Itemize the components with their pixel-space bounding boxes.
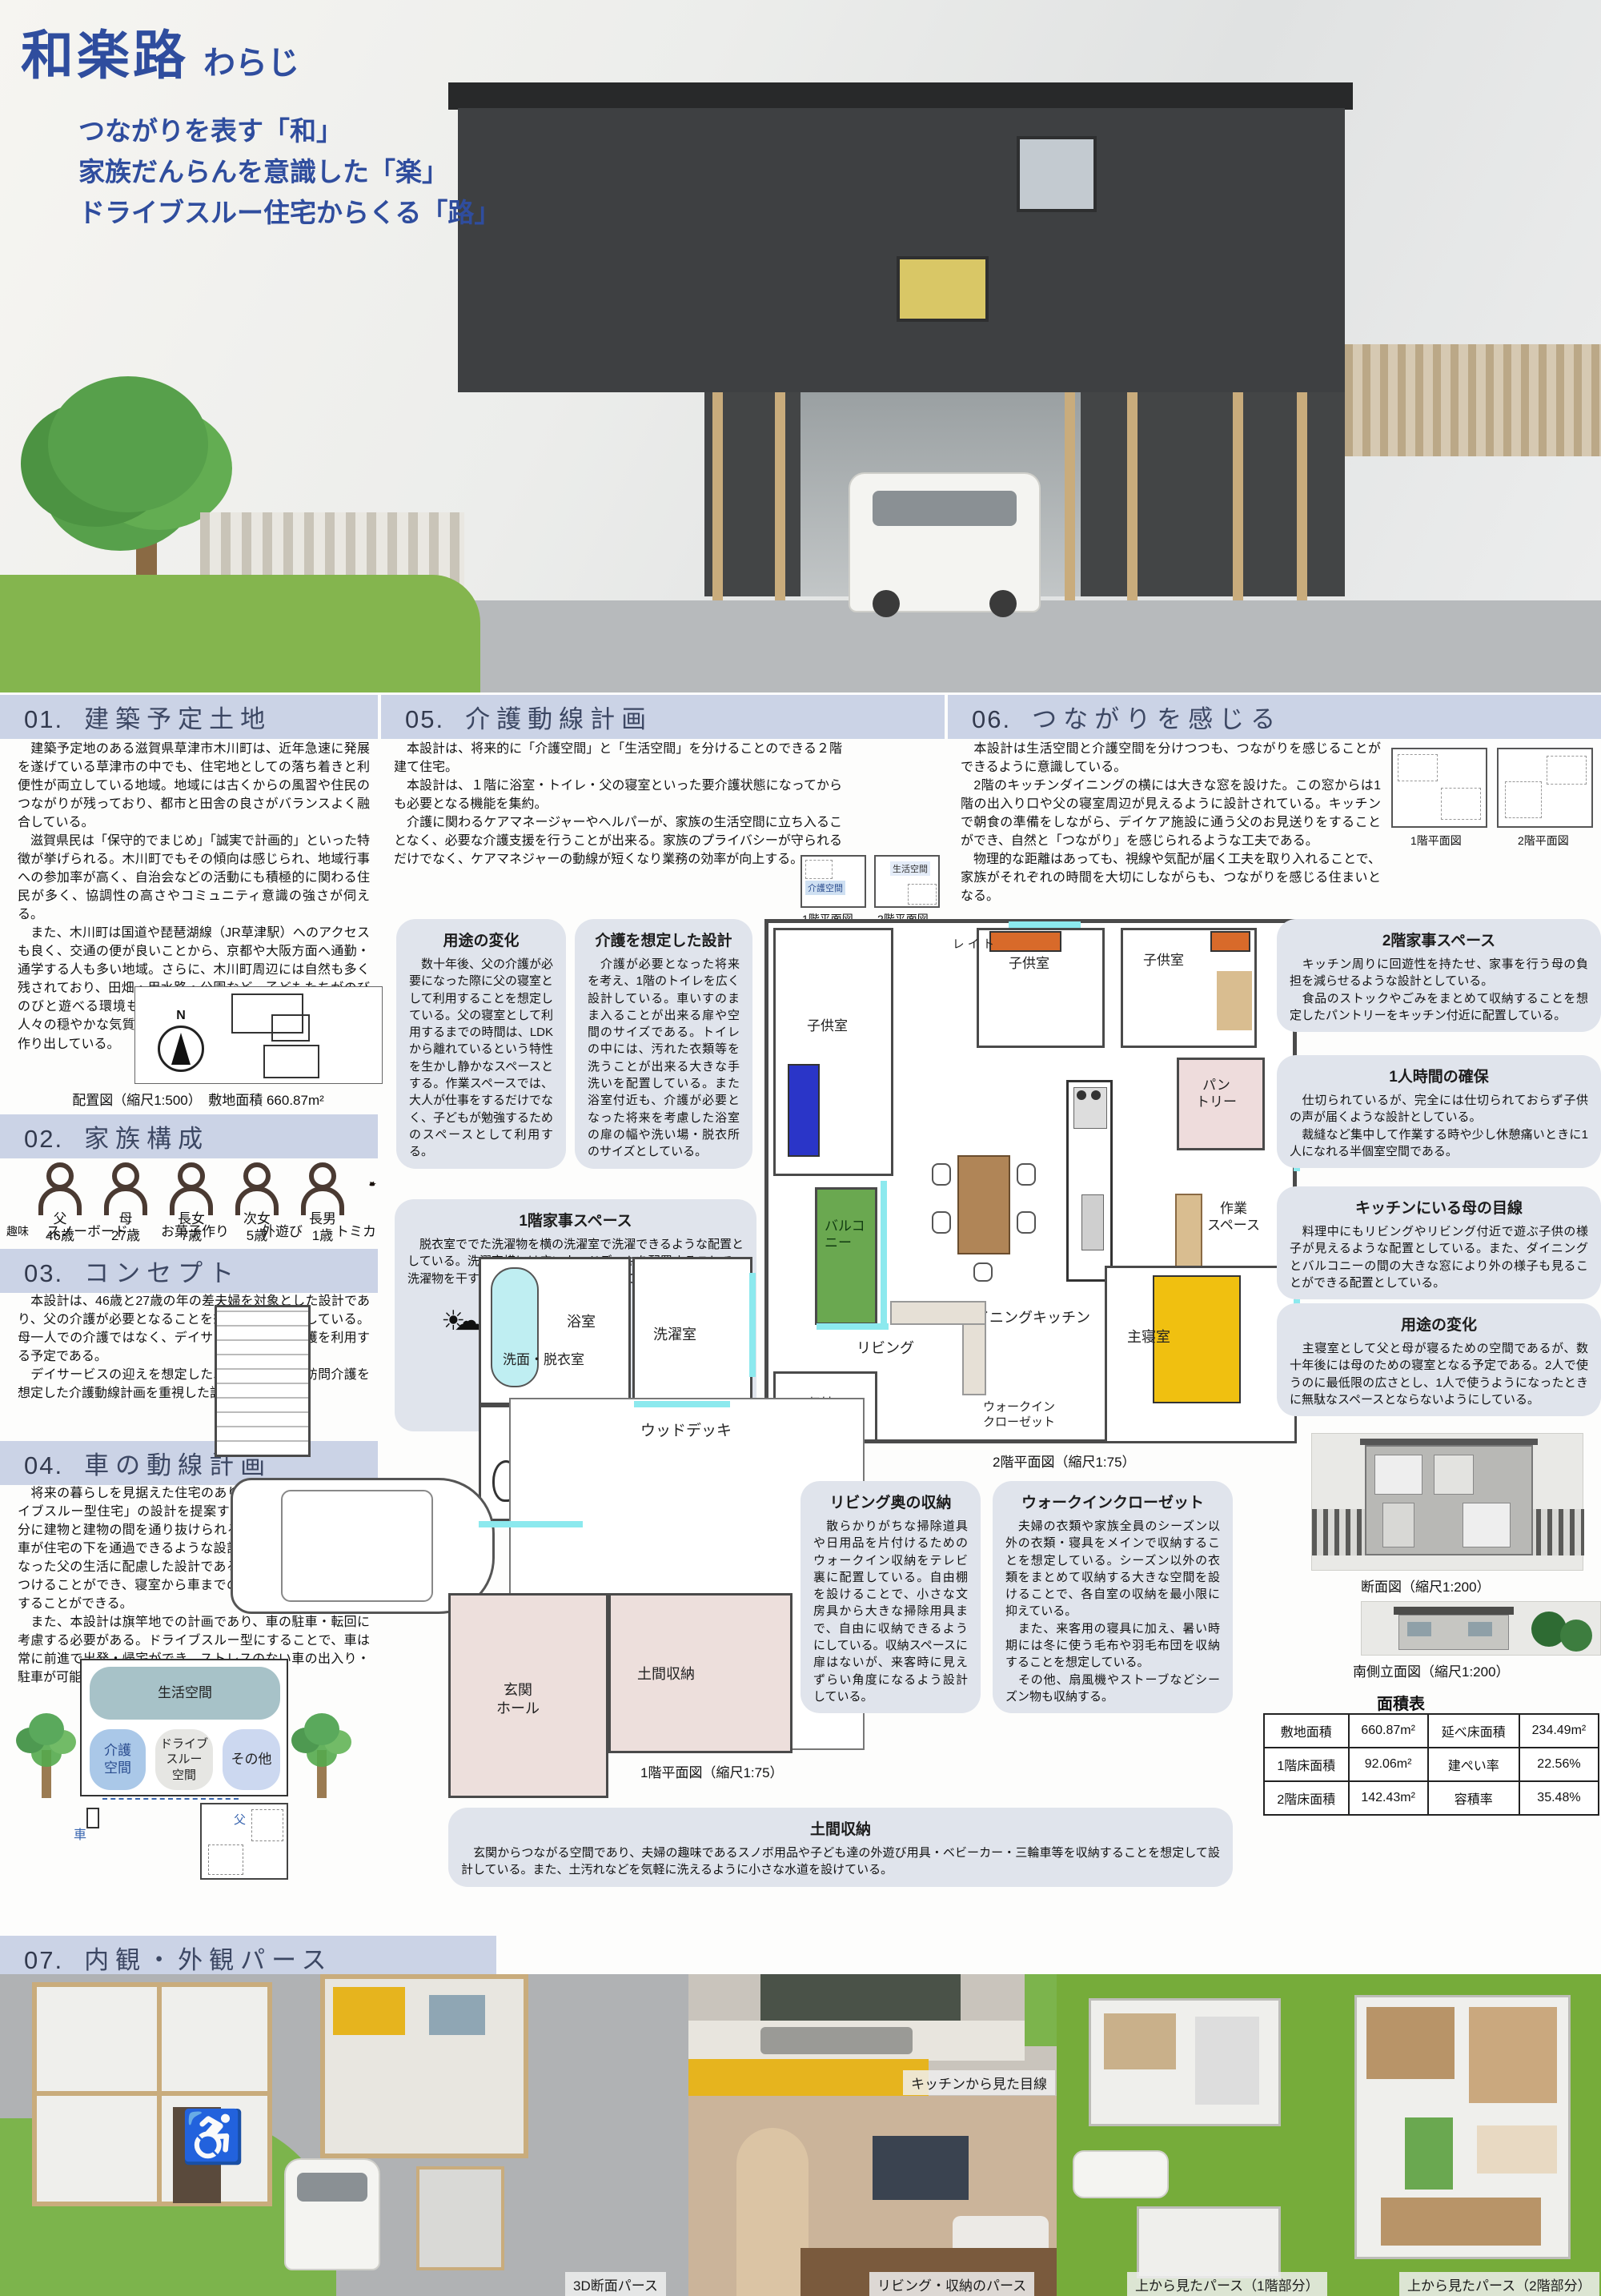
window <box>1009 921 1081 928</box>
van-wheel <box>989 590 1017 617</box>
chair <box>932 1163 951 1186</box>
perspective-top-2f <box>1330 1974 1601 2296</box>
van-wheel <box>873 590 900 617</box>
site-plan-caption: 配置図（縮尺1:500） 敷地面積 660.87m² <box>16 1089 380 1109</box>
room-label-wic: ウォークイン クローゼット <box>983 1400 1055 1431</box>
bed-blue <box>788 1064 820 1157</box>
box-care-design: 介護を想定した設計 介護が必要となった将来を考え、1階のトイレを広く設計している… <box>575 919 752 1169</box>
table-cell: 延べ床面積 <box>1428 1714 1519 1748</box>
room-label-bath: 浴室 <box>567 1313 596 1331</box>
table-cell: 35.48% <box>1519 1781 1599 1815</box>
table-row: 2階床面積 142.43m² 容積率 35.48% <box>1264 1781 1599 1815</box>
box-title: リビング奥の収納 <box>813 1491 968 1512</box>
van-windshield <box>297 2173 367 2201</box>
sofa <box>890 1301 986 1325</box>
tv-screen <box>873 2136 969 2200</box>
compass-icon: N <box>158 1026 204 1072</box>
section-07-number: 07. <box>24 1946 63 1974</box>
care-space-box: 介護 空間 <box>90 1729 146 1790</box>
chair <box>973 1262 993 1282</box>
caption-living-chip: リビング・収納のパース <box>869 2272 1034 2296</box>
bathtub <box>491 1267 539 1387</box>
box-doma-storage: 土間収納 玄関からつながる空間であり、夫婦の趣味であるスノボ用品や子ども達の外遊… <box>448 1808 1233 1887</box>
cutaway-structure <box>320 1974 528 2158</box>
kitchen-grass <box>1025 1974 1057 2046</box>
site-plan-diagram: N <box>134 986 383 1084</box>
person-icon <box>303 1162 343 1210</box>
plan-1f-caption: 1階平面図（縮尺1:75） <box>640 1761 784 1781</box>
window <box>479 1521 583 1527</box>
section-house-body <box>1365 1445 1533 1555</box>
box-body: キッチン周りに回遊性を持たせ、家事を行う母の負担を減らせるような設計としている。… <box>1290 956 1588 1024</box>
bed-orange <box>1210 931 1250 952</box>
box-mother-eyeline: キッチンにいる母の目線 料理中にもリビングやリビング付近で遊ぶ子供の様子が見える… <box>1277 1186 1601 1299</box>
cat-icon <box>368 1166 376 1201</box>
box-title: 用途の変化 <box>409 929 553 950</box>
thumb-caption: 2階平面図 <box>1518 833 1569 849</box>
box-alone-time: 1人時間の確保 仕切られているが、完全には仕切られておらず子供の声が届くような設… <box>1277 1055 1601 1168</box>
hero-render: 和楽路わらじ つながりを表す「和」 家族だんらんを意識した「楽」 ドライブスルー… <box>0 0 1601 692</box>
house-upper-floor <box>458 108 1345 392</box>
window <box>881 1181 887 1325</box>
plan-thumbnail-2f: 生活空間 <box>874 855 940 908</box>
room-label-doma: 土間収納 <box>637 1665 695 1684</box>
box-usage-change-1f: 用途の変化 数十年後、父の介護が必要になった際に父の寝室として利用することを想定… <box>396 919 566 1169</box>
model-1f-part <box>1137 2206 1281 2278</box>
lit-window <box>897 256 989 322</box>
site-plan-building <box>271 1014 310 1042</box>
desk <box>1217 971 1252 1030</box>
hobby-item: スノーボード <box>46 1220 128 1240</box>
car-marker <box>86 1808 99 1828</box>
room-label-kids1: 子供室 <box>807 1018 848 1034</box>
table-cell: 建ぺい率 <box>1428 1748 1519 1781</box>
kitchen-window <box>760 1974 961 2022</box>
room-label-senmen: 洗面・脱衣室 <box>503 1351 584 1368</box>
section-06-bar: 06.つながりを感じる <box>948 695 1601 739</box>
section-03-number: 03. <box>24 1259 63 1287</box>
box-body: 夫婦の衣類や家族全員のシーズン以外の衣類・寝具をメインで収納することを想定してい… <box>1005 1518 1220 1705</box>
section-06-body: 本設計は生活空間と介護空間を分けつつも、つながりを感じることができるように意識し… <box>961 740 1381 905</box>
mini-room <box>208 1844 243 1875</box>
section-drawing <box>1311 1433 1583 1571</box>
arch-niche <box>736 2128 809 2296</box>
elevation-roof <box>1394 1607 1514 1615</box>
plan-thumbnail-2f <box>1497 748 1593 828</box>
box-body: 介護が必要となった将来を考え、1階のトイレを広く設計している。車いすのまま入るこ… <box>588 956 740 1161</box>
kitchen-counter-render <box>688 2021 1025 2061</box>
table-row: 敷地面積 660.87m² 延べ床面積 234.49m² <box>1264 1714 1599 1748</box>
elevation-drawing <box>1361 1601 1601 1656</box>
room-label-wooddeck: ウッドデッキ <box>640 1422 732 1441</box>
plan-thumbnail-1f: 介護空間 <box>800 855 866 908</box>
model-van <box>1073 2150 1169 2198</box>
table-cell: 2階床面積 <box>1264 1781 1349 1815</box>
plan-2f-caption: 2階平面図（縮尺1:75） <box>993 1451 1136 1471</box>
box-body: 数十年後、父の介護が必要になった際に父の寝室として利用することを想定している。父… <box>409 956 553 1161</box>
tree-foliage <box>48 376 208 512</box>
route-mini-plan: 父 <box>200 1803 288 1880</box>
dining-table <box>957 1155 1010 1254</box>
site-plan-building <box>263 1045 319 1078</box>
section-01-number: 01. <box>24 705 63 733</box>
section-06-title: つながりを感じる <box>1032 705 1282 733</box>
section-05-title: 介護動線計画 <box>465 705 652 733</box>
hobby-item: トミカ <box>335 1220 376 1240</box>
section-02-number: 02. <box>24 1125 63 1153</box>
chair <box>1017 1163 1036 1186</box>
table-cell: 92.06m² <box>1349 1748 1428 1781</box>
table-cell: 1階床面積 <box>1264 1748 1349 1781</box>
perspective-living-storage <box>688 2096 1057 2296</box>
section-drawing-caption: 断面図（縮尺1:200） <box>1361 1575 1491 1596</box>
box-usage-change-2f: 用途の変化 主寝室として父と母が寝るための空間であるが、数十年後には母のための寝… <box>1277 1303 1601 1416</box>
section-07-title: 内観・外観パース <box>84 1946 332 1974</box>
living-space-tag: 生活空間 <box>890 861 930 876</box>
box-title: 1階家事スペース <box>407 1209 744 1230</box>
room-label-kids2: 子供室 <box>1009 955 1049 972</box>
house-post <box>1127 392 1138 624</box>
mini-room <box>251 1809 283 1841</box>
table-cell: 142.43m² <box>1349 1781 1428 1815</box>
caption-top1f-chip: 上から見たパース（1階部分） <box>1127 2272 1327 2296</box>
chair <box>1017 1211 1036 1234</box>
section-02-bar: 02.家族構成 <box>0 1114 378 1158</box>
care-space-tag: 介護空間 <box>805 881 845 895</box>
van-windshield <box>873 491 1016 526</box>
table-cell: 234.49m² <box>1519 1714 1599 1748</box>
box-title: 2階家事スペース <box>1290 929 1588 950</box>
car-cabin <box>281 1490 433 1602</box>
person-icon <box>106 1162 146 1210</box>
section-05-body: 本設計は、将来的に「介護空間」と「生活空間」を分けることのできる２階建て住宅。 … <box>394 740 842 869</box>
box-walkin-closet: ウォークインクローゼット 夫婦の衣類や家族全員のシーズン以外の衣類・寝具をメイン… <box>993 1481 1233 1713</box>
caption-3d-section-chip: 3D断面パース <box>565 2272 666 2296</box>
model-1f <box>1089 1998 1281 2126</box>
presentation-board: 和楽路わらじ つながりを表す「和」 家族だんらんを意識した「楽」 ドライブスルー… <box>0 0 1601 2296</box>
person-icon <box>40 1162 80 1210</box>
section-06-number: 06. <box>972 705 1011 733</box>
chair <box>932 1211 951 1234</box>
box-body: 散らかりがちな掃除道具や日用品を片付けるためのウォークイン収納をテレビ裏に配置し… <box>813 1518 968 1705</box>
model-2f <box>1354 1995 1571 2259</box>
wheelchair-pictogram: ♿ <box>181 2107 245 2167</box>
hobby-item: 外遊び <box>262 1220 303 1240</box>
section-05-bar: 05.介護動線計画 <box>381 695 945 739</box>
room-label-work: 作業 スペース <box>1207 1200 1260 1234</box>
table-cell: 22.56% <box>1519 1748 1599 1781</box>
box-body: 料理中にもリビングやリビング付近で遊ぶ子供の様子が見えるような配置としている。ま… <box>1290 1223 1588 1291</box>
compass-needle <box>171 1033 191 1065</box>
box-living-storage: リビング奥の収納 散らかりがちな掃除道具や日用品を片付けるためのウォークイン収納… <box>800 1481 981 1713</box>
box-body: 玄関からつながる空間であり、夫婦の趣味であるスノボ用品や子ども達の外遊び用具・ベ… <box>461 1844 1220 1879</box>
cutaway-structure: ♿ <box>32 1982 272 2206</box>
section-02-title: 家族構成 <box>84 1125 209 1153</box>
table-cell: 敷地面積 <box>1264 1714 1349 1748</box>
box-title: キッチンにいる母の目線 <box>1290 1196 1588 1218</box>
house-post <box>1233 392 1243 624</box>
caption-top2f-chip: 上から見たパース（2階部分） <box>1399 2272 1599 2296</box>
table-cell: 660.87m² <box>1349 1714 1428 1748</box>
section-01-bar: 01.建築予定土地 <box>0 695 378 739</box>
hobby-row: スノーボード お菓子作り 外遊び トミカ <box>46 1220 376 1240</box>
hobby-label: 趣味 <box>6 1223 29 1239</box>
elevation-wall <box>1398 1615 1509 1650</box>
render-van <box>284 2158 380 2270</box>
bed-orange <box>989 931 1061 952</box>
room-label-toilet-2f: ト イ レ <box>949 937 994 951</box>
plan-thumbnail-1f <box>1391 748 1487 828</box>
box-title: 用途の変化 <box>1290 1313 1588 1335</box>
window <box>634 1401 730 1407</box>
drive-through-box: ドライブ スルー 空間 <box>155 1729 213 1790</box>
house-post <box>1065 392 1075 624</box>
box-title: 土間収納 <box>461 1817 1220 1839</box>
box-title: ウォークインクローゼット <box>1005 1491 1220 1512</box>
room-label-laundry: 洗濯室 <box>653 1326 696 1344</box>
fence-right <box>1345 344 1601 456</box>
section-05-number: 05. <box>405 705 444 733</box>
stair-volume <box>416 2166 504 2270</box>
person-icon <box>237 1162 277 1210</box>
window <box>749 1273 756 1377</box>
box-housework-2f: 2階家事スペース キッチン周りに回遊性を持たせ、家事を行う母の負担を減らせるよう… <box>1277 919 1601 1032</box>
kitchen-counter <box>1066 1080 1113 1282</box>
title-main: 和楽路 <box>21 24 189 86</box>
area-table: 敷地面積 660.87m² 延べ床面積 234.49m² 1階床面積 92.06… <box>1263 1713 1599 1816</box>
father-route-label: 父 <box>234 1811 246 1828</box>
hobby-item: お菓子作り <box>161 1220 229 1240</box>
title-ruby: わらじ <box>203 44 299 82</box>
section-01-title: 建築予定土地 <box>84 705 271 733</box>
house-post <box>1297 392 1307 624</box>
section-07-bar: 07.内観・外観パース <box>0 1936 496 1980</box>
area-table-title: 面積表 <box>1377 1691 1425 1714</box>
family-van <box>849 472 1041 612</box>
bathroom <box>479 1257 631 1405</box>
room-label-kids3: 子供室 <box>1143 952 1184 969</box>
upper-window <box>1017 136 1097 212</box>
room-label-master: 主寝室 <box>1127 1328 1170 1347</box>
title-block: 和楽路わらじ つながりを表す「和」 家族だんらんを意識した「楽」 ドライブスルー… <box>21 13 500 233</box>
table-row: 1階床面積 92.06m² 建ぺい率 22.56% <box>1264 1748 1599 1781</box>
house-roof <box>448 82 1353 110</box>
thumb-caption: 1階平面図 <box>1410 833 1462 849</box>
box-body: 主寝室として父と母が寝るための空間であるが、数十年後には母のための寝室となる予定… <box>1290 1340 1588 1408</box>
doma-storage-room <box>608 1593 792 1753</box>
car-route-label: 車 <box>74 1824 86 1843</box>
table-cell: 容積率 <box>1428 1781 1519 1815</box>
title-subtitle: つながりを表す「和」 家族だんらんを意識した「楽」 ドライブスルー住宅からくる「… <box>78 110 500 233</box>
kitchen-cabinets <box>688 2059 929 2096</box>
section-roof <box>1360 1439 1538 1445</box>
room-label-balcony: バルコ ニー <box>825 1218 865 1252</box>
lawn <box>0 575 480 692</box>
perspective-top-1f <box>1057 1974 1330 2296</box>
room-label-pantry: パン トリー <box>1196 1077 1237 1111</box>
elevation-tree <box>1560 1620 1592 1652</box>
caption-kitchen-chip: キッチンから見た目線 <box>903 2070 1055 2095</box>
section-04-number: 04. <box>24 1451 63 1479</box>
room-label-genkan: 玄関 ホール <box>496 1681 540 1717</box>
box-title: 介護を想定した設計 <box>588 929 740 950</box>
perspective-3d-section: ♿ <box>0 1974 688 2296</box>
compass-north-label: N <box>176 1009 186 1023</box>
floor-plan-1f: 浴室 洗濯室 洗面・脱衣室 トイレ ウッドデッキ 玄関 ホール 土間収納 <box>215 1249 867 1809</box>
box-body: 仕切られているが、完全には仕切られておらず子供の声が届くような設計としている。 … <box>1290 1092 1588 1160</box>
stairs <box>215 1305 311 1457</box>
house-post <box>712 392 723 624</box>
sofa <box>962 1323 986 1395</box>
house-post <box>775 392 785 624</box>
box-title: 1人時間の確保 <box>1290 1065 1588 1086</box>
elevation-caption: 南側立面図（縮尺1:200） <box>1353 1660 1510 1680</box>
person-icon <box>171 1162 211 1210</box>
